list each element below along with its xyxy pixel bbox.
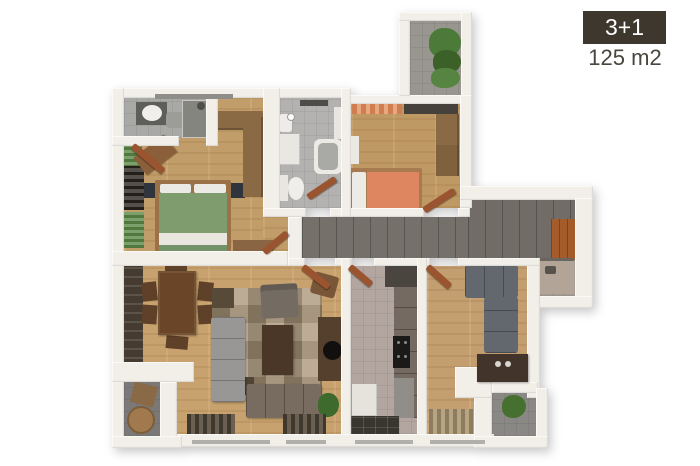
balcony-round-table <box>127 406 155 434</box>
corner-sofa <box>465 265 518 298</box>
hallway-floor <box>302 217 470 258</box>
wall-radiator <box>351 136 359 164</box>
dishwasher <box>394 378 414 418</box>
bookshelf <box>123 260 143 368</box>
wall <box>460 186 593 200</box>
area-label: 125 m2 <box>570 46 680 70</box>
wall <box>112 362 194 382</box>
wall <box>288 258 305 266</box>
wall <box>458 208 470 217</box>
green-duvet <box>159 193 227 233</box>
stove <box>393 336 410 368</box>
dining-table <box>158 271 196 335</box>
stove-burner-icon <box>397 341 400 344</box>
wall <box>575 198 593 308</box>
bathtub-basin <box>318 143 338 170</box>
vent-strip <box>300 100 328 106</box>
wall <box>263 208 306 217</box>
window <box>155 94 233 99</box>
rug-patch <box>212 288 234 308</box>
pillow <box>194 184 226 193</box>
window <box>355 440 413 444</box>
sofa-brown <box>246 384 321 418</box>
shower-head-icon <box>287 113 295 121</box>
wall <box>399 12 410 96</box>
floor-plan-image: 3+1 125 m2 <box>0 0 700 466</box>
orange-duvet <box>367 172 419 210</box>
bed-sheet <box>159 233 227 245</box>
entry-cabinet <box>551 219 575 260</box>
coffee-table <box>262 325 293 375</box>
wall <box>527 258 540 398</box>
wardrobe <box>436 114 459 176</box>
wall <box>458 258 540 266</box>
table-tray-icon <box>495 361 501 367</box>
wardrobe <box>243 117 263 197</box>
washing-machine <box>280 134 300 165</box>
wall <box>112 436 182 448</box>
dining-chair <box>165 335 188 350</box>
wall <box>345 95 462 104</box>
desk-table <box>477 354 528 382</box>
wall <box>417 258 427 446</box>
wall <box>492 382 538 393</box>
wall <box>206 95 218 146</box>
wall <box>341 88 351 217</box>
sink <box>142 105 162 121</box>
wall <box>112 136 179 146</box>
wall <box>263 88 280 217</box>
dining-chair <box>141 281 158 301</box>
wall <box>461 12 472 96</box>
wall <box>112 251 288 266</box>
sofa-gray <box>211 317 245 402</box>
fridge <box>385 264 417 287</box>
kitchen-counter-white <box>352 384 377 416</box>
wall <box>341 258 351 446</box>
dining-chair <box>141 304 157 324</box>
radiator-grille <box>187 414 235 436</box>
pillow <box>160 184 191 193</box>
corner-sofa <box>484 297 518 353</box>
window <box>430 440 485 444</box>
plan-type-badge: 3+1 <box>583 11 666 44</box>
ladder-shelf <box>122 166 144 210</box>
window <box>286 440 326 444</box>
pillow <box>352 172 366 210</box>
armchair <box>260 283 299 319</box>
radiator-grille <box>283 414 326 436</box>
window <box>192 440 270 444</box>
shower-head-icon <box>197 102 205 110</box>
nook-sink <box>545 266 556 274</box>
tv-disc <box>323 341 342 360</box>
wall <box>474 436 548 448</box>
toilet-tank <box>279 175 288 201</box>
